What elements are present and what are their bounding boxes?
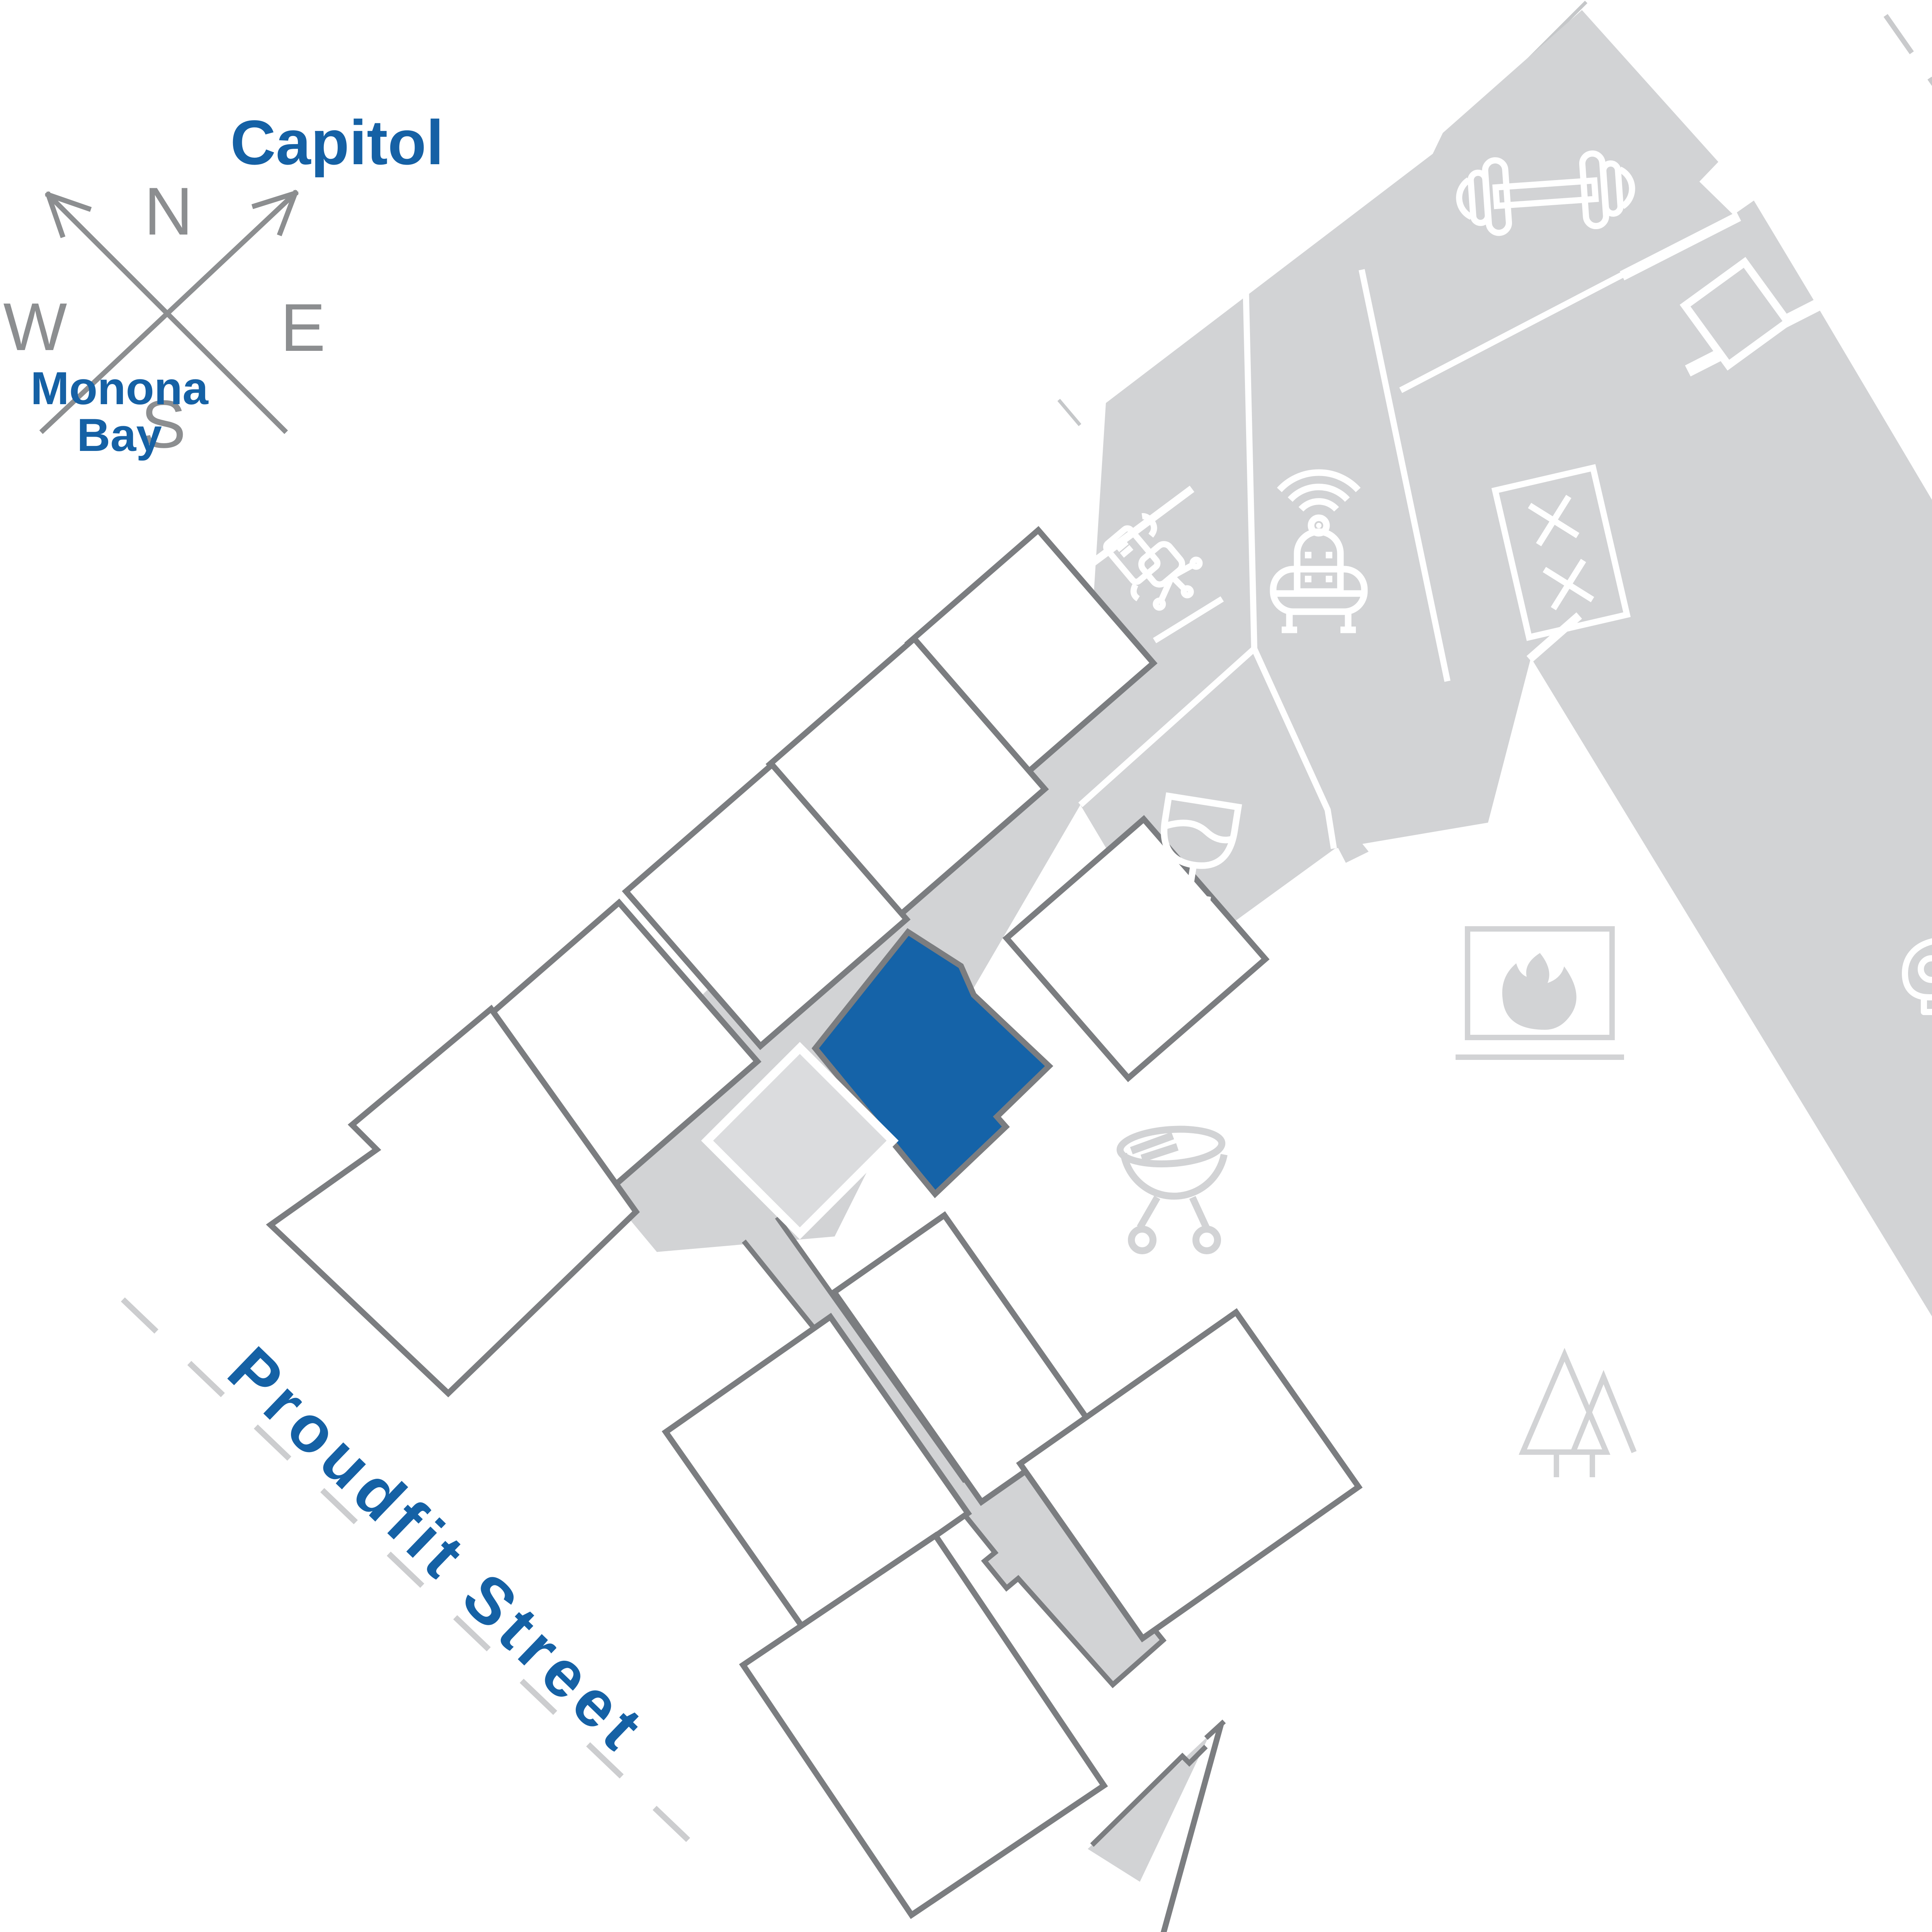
svg-text:Monona: Monona bbox=[31, 362, 209, 414]
svg-text:N: N bbox=[144, 174, 193, 249]
svg-text:W: W bbox=[3, 289, 67, 365]
svg-text:E: E bbox=[281, 290, 326, 366]
svg-text:Bay: Bay bbox=[77, 409, 162, 461]
svg-text:Capitol: Capitol bbox=[230, 107, 444, 178]
